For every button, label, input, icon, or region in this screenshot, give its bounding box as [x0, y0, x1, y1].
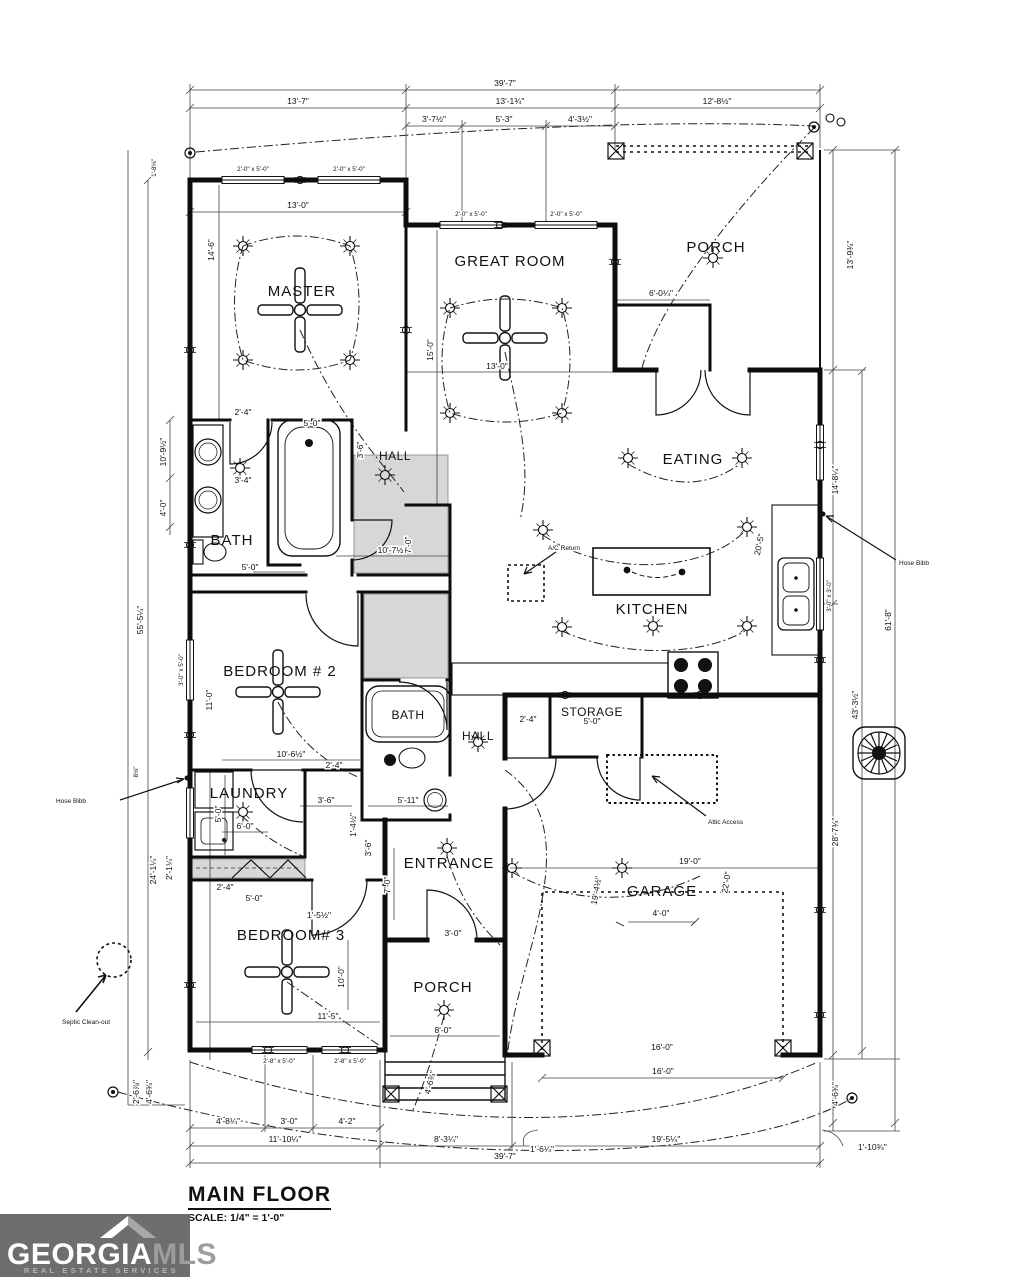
dim-win-great-1: 2'-0" x 5'-0" [455, 211, 487, 218]
dim-bot-seg2: 8'-3¼" [434, 1134, 458, 1144]
dim-bot-sub2: 3'-0" [281, 1116, 298, 1126]
room-label-bath-master: BATH [211, 532, 254, 549]
sheet-title-block: MAIN FLOOR SCALE: 1/4" = 1'-0" [188, 1183, 331, 1224]
interior-walls [190, 225, 710, 880]
room-label-eating: EATING [663, 451, 724, 468]
dim-great-w: 13'-0" [486, 361, 508, 371]
dim-left-bath2: 4'-0" [158, 500, 168, 517]
dim-right-total2: 43'-3½" [850, 691, 860, 720]
dim-right-corner: 1'-10¾" [858, 1142, 887, 1152]
georgia-mls-logo: GEORGIAMLS REAL ESTATE SERVICES [0, 1214, 190, 1277]
dim-win-bed3-2: 2'-8" x 5'-0" [334, 1058, 366, 1065]
dim-bath2-off: 2'-4" [326, 760, 343, 770]
dim-win-master-2: 2'-0" x 5'-0" [333, 166, 365, 173]
dim-tub-l: 5'-0" [304, 418, 321, 428]
dim-gar-door: 16'-0" [651, 1042, 673, 1052]
dim-top-seg2: 13'-1¾" [496, 96, 525, 106]
dim-porchb-w: 8'-0" [435, 1025, 452, 1035]
dim-bed3-d2: 1'-5½" [307, 910, 331, 920]
dim-bed3-off: 2'-4" [217, 882, 234, 892]
dim-bath2-w2: 5'-11" [397, 795, 418, 805]
pendant-lights [624, 567, 686, 578]
dim-bot-sub3: 4'-2" [339, 1116, 356, 1126]
page-title: MAIN FLOOR [188, 1183, 331, 1210]
dim-bath2-w1: 3'-6" [318, 795, 335, 805]
dimension-labels: 39'-7" 13'-7" 13'-1¾" 12'-8½" 3'-7½" 5'-… [131, 78, 893, 1161]
annotation-labels: A/C Return Attic Access Hose Bibb Hose B… [56, 545, 929, 1026]
room-label-porch-top: PORCH [686, 239, 745, 256]
dim-left-bibb: 8⅛" [133, 767, 140, 778]
porch-beam-lines [616, 146, 812, 152]
dim-left-bath1: 10'-9½" [158, 438, 168, 467]
room-labels: MASTER GREAT ROOM PORCH EATING KITCHEN B… [210, 239, 746, 996]
logo-tagline: REAL ESTATE SERVICES [24, 1266, 179, 1275]
room-label-garage: GARAGE [627, 883, 697, 900]
room-label-master: MASTER [268, 283, 337, 300]
electrical-wiring-curves [118, 124, 852, 1151]
dim-bed3-h: 10'-0" [336, 966, 346, 988]
dim-bot-seg1: 11'-10¼" [269, 1134, 302, 1144]
dim-left-seg2: 2'-1¼" [164, 856, 174, 880]
room-label-entrance: ENTRANCE [404, 855, 495, 872]
floor-plan-drawing: MASTER GREAT ROOM PORCH EATING KITCHEN B… [0, 0, 1024, 1277]
dim-ent-h2: 7'-0" [382, 877, 392, 894]
dim-win-bed3-1: 2'-8" x 5'-0" [263, 1058, 295, 1065]
dim-bed2-w: 10'-6½" [277, 749, 306, 759]
dim-tub-off: 2'-4" [235, 407, 252, 417]
dim-top-total: 39'-7" [494, 78, 516, 88]
dim-laundry-w: 6'-0" [237, 821, 254, 831]
attic-access-outline [607, 755, 717, 803]
dim-bed3-d1: 5'-0" [246, 893, 263, 903]
scale-note: SCALE: 1/4" = 1'-0" [188, 1212, 331, 1224]
hose-bibb-left-label: Hose Bibb [56, 798, 86, 805]
dim-bot-off1: 1'-6¼" [530, 1144, 554, 1154]
dim-bath-w: 5'-0" [242, 562, 259, 572]
can-lights [230, 236, 757, 1020]
attic-access-label: Attic Access [708, 819, 744, 826]
room-label-bedroom3: BEDROOM# 3 [237, 927, 345, 944]
dim-porch-jog: 6'-0¼" [649, 288, 673, 298]
dim-porchb-d: 4'-6¾" [422, 1069, 438, 1095]
dim-storage-w: 5'-0" [584, 716, 601, 726]
dim-hall-d: 7'-0" [403, 537, 413, 554]
dim-left-corner-top: 1'-8⅛" [151, 159, 158, 177]
dim-bed3-w: 11'-5" [317, 1011, 338, 1021]
dim-hall-cl: 3'-6" [355, 442, 365, 459]
dim-gar-door2: 16'-0" [652, 1066, 674, 1076]
dim-bed2-h: 11'-0" [204, 689, 214, 710]
dim-top-seg3: 12'-8½" [703, 96, 732, 106]
dim-gar-h1: 19'-4½" [589, 875, 604, 905]
dim-top-seg1: 13'-7" [287, 96, 309, 106]
room-label-bedroom2: BEDROOM # 2 [223, 663, 337, 680]
dim-master-w: 13'-0" [287, 200, 309, 210]
dim-right-total: 61'-8" [883, 609, 893, 631]
roof-icon [98, 1216, 160, 1238]
room-label-laundry: LAUNDRY [210, 785, 288, 802]
dim-win-kitchen: 3'-0" x 3'-0" [826, 580, 833, 612]
room-label-porch-bottom: PORCH [413, 979, 472, 996]
dim-win-master-1: 2'-0" x 5'-0" [237, 166, 269, 173]
dim-gar-w: 19'-0" [679, 856, 701, 866]
dim-storage-off: 2'-4" [520, 714, 537, 724]
dim-right-seg3: 28'-7¾" [830, 818, 840, 847]
dim-top-sub3: 4'-3½" [568, 114, 592, 124]
dim-win-bed2: 3'-0" x 5'-0" [178, 654, 185, 686]
dim-left-seg: 24'-1¼" [148, 856, 158, 885]
septic-label: Septic Clean-out [62, 1019, 110, 1026]
dim-left-total: 55'-5¼" [135, 606, 145, 635]
dim-left-bottom: 4'-6¾" [144, 1080, 154, 1104]
dim-eating-h: 14'-8¼" [830, 466, 840, 495]
dim-right-seg4: 4'-6¾" [830, 1082, 840, 1106]
dim-great-h: 15'-0" [425, 339, 435, 361]
room-label-bath2: BATH [391, 708, 424, 722]
dim-bot-sub1: 4'-8¼" [216, 1116, 240, 1126]
dim-gar-clear: 4'-0" [653, 908, 670, 918]
dim-bath-counter: 3'-4" [235, 475, 252, 485]
dim-master-h: 14'-6" [206, 239, 216, 261]
room-label-hall-lower: HALL [462, 729, 494, 743]
dim-win-great-2: 2'-0" x 5'-0" [550, 211, 582, 218]
dim-ent-h1: 3'-6" [363, 840, 373, 857]
dim-ent-door: 3'-0" [445, 928, 462, 938]
dim-gar-h2: 22'-0" [719, 871, 733, 894]
dim-porch-h: 13'-9¾" [845, 241, 855, 270]
dim-bot-total: 39'-7" [494, 1151, 516, 1161]
exterior-walls [190, 180, 820, 1055]
dim-left-laundry-win: 5'-0" [213, 806, 223, 823]
dimension-lines [128, 84, 900, 1168]
room-label-great-room: GREAT ROOM [454, 253, 565, 270]
dim-top-sub1: 3'-7½" [422, 114, 446, 124]
room-label-kitchen: KITCHEN [616, 601, 689, 618]
dim-left-bottom2: 2'-6⅞" [131, 1080, 141, 1104]
dim-kitchen-d: 20'-5" [752, 533, 766, 556]
room-label-hall-upper: HALL [379, 449, 411, 463]
ac-return-label: A/C Return [548, 545, 581, 552]
dim-top-sub2: 5'-3" [496, 114, 513, 124]
hose-bibb-right-label: Hose Bibb [899, 560, 929, 567]
dim-bot-seg3: 19'-5¼" [652, 1134, 681, 1144]
dim-bath2-h: 1'-4½" [348, 813, 358, 837]
